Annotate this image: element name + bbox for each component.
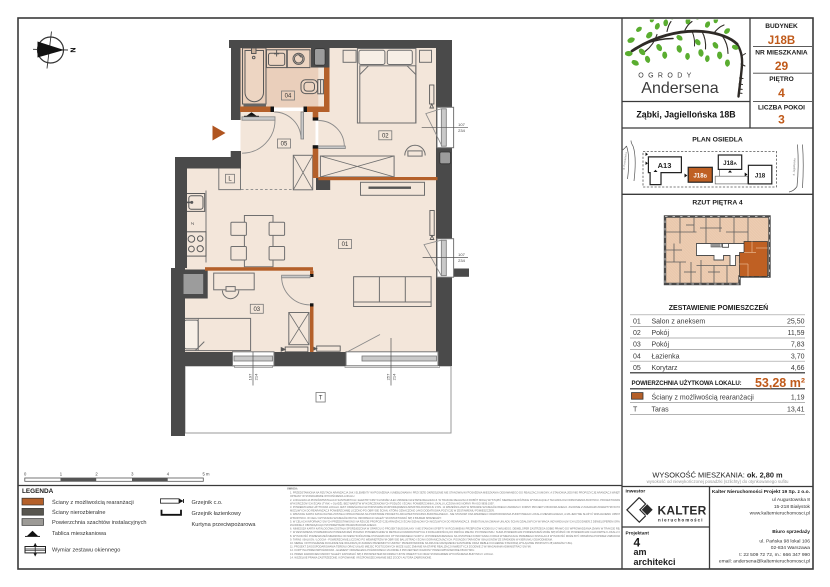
svg-text:architekci: architekci xyxy=(634,557,676,567)
svg-text:ZGODNIE Z OBOWIĄZUJĄCYMI PRZEP: ZGODNIE Z OBOWIĄZUJĄCYMI PRZEPISAMI PRAW… xyxy=(290,523,377,527)
svg-text:Ściany z możliwością rearanżac: Ściany z możliwością rearanżacji xyxy=(52,498,134,506)
svg-text:4: 4 xyxy=(778,86,785,100)
svg-text:Pokój: Pokój xyxy=(652,342,670,349)
svg-text:UWAGA:: UWAGA: xyxy=(287,487,298,491)
svg-text:www.kalternieruchomosci.pl: www.kalternieruchomosci.pl xyxy=(750,511,810,517)
svg-text:02: 02 xyxy=(382,134,389,140)
svg-text:53,28 m²: 53,28 m² xyxy=(755,376,805,390)
svg-text:N: N xyxy=(69,47,76,52)
svg-text:Andersena: Andersena xyxy=(641,80,718,97)
svg-text:Salon z aneksem: Salon z aneksem xyxy=(652,319,706,326)
svg-text:Taras: Taras xyxy=(652,406,670,413)
svg-text:Ząbki, Jagiellońska 18B: Ząbki, Jagiellońska 18B xyxy=(636,110,735,120)
svg-text:ZESTAWIENIE POMIESZCZEŃ: ZESTAWIENIE POMIESZCZEŃ xyxy=(669,303,768,312)
svg-text:Ściany z możliwością rearanżac: Ściany z możliwością rearanżacji xyxy=(652,392,755,401)
svg-text:t: 22 509 72 72, m.: 666 347 9: t: 22 509 72 72, m.: 666 347 990 xyxy=(739,552,810,558)
svg-text:J18A: J18A xyxy=(723,160,737,167)
svg-text:J18B: J18B xyxy=(693,173,707,180)
svg-text:01: 01 xyxy=(342,242,349,248)
svg-text:email: andersena@kalternieruch: email: andersena@kalternieruchomosci.pl xyxy=(719,559,810,565)
svg-text:ul. Jagiellońska: ul. Jagiellońska xyxy=(792,158,797,176)
svg-text:Ściany nierozbieralne: Ściany nierozbieralne xyxy=(52,508,105,516)
svg-text:214: 214 xyxy=(253,373,258,380)
svg-text:0: 0 xyxy=(24,472,27,477)
svg-text:234: 234 xyxy=(458,258,465,263)
svg-text:OGRODY: OGRODY xyxy=(638,73,696,80)
svg-text:Biuro sprzedaży: Biuro sprzedaży xyxy=(772,529,810,535)
svg-text:PIĘTRO: PIĘTRO xyxy=(769,76,794,83)
svg-text:3: 3 xyxy=(131,472,134,477)
svg-text:T: T xyxy=(633,406,638,413)
svg-text:T: T xyxy=(319,396,323,402)
svg-text:J18: J18 xyxy=(755,172,766,179)
svg-text:Powierzchnia szachtów instalac: Powierzchnia szachtów instalacyjnych xyxy=(52,520,147,526)
svg-text:05: 05 xyxy=(281,142,288,148)
svg-text:11,59: 11,59 xyxy=(788,330,805,337)
svg-text:02: 02 xyxy=(633,330,641,337)
svg-text:234: 234 xyxy=(458,128,465,133)
svg-text:29: 29 xyxy=(775,59,789,73)
svg-text:Wymiar zestawu okiennego: Wymiar zestawu okiennego xyxy=(52,547,120,553)
svg-text:OPISANY W STANDARDZIE WYKOŃCZE: OPISANY W STANDARDZIE WYKOŃCZENIA LOKALU… xyxy=(290,494,355,498)
svg-text:4: 4 xyxy=(167,472,170,477)
svg-text:214: 214 xyxy=(391,373,396,380)
svg-text:13,41: 13,41 xyxy=(787,406,805,413)
svg-text:A13: A13 xyxy=(658,161,672,170)
svg-text:15-218 Białystok: 15-218 Białystok xyxy=(774,504,811,510)
svg-text:04: 04 xyxy=(633,353,641,360)
svg-text:197: 197 xyxy=(248,373,253,380)
svg-text:03: 03 xyxy=(253,307,260,313)
svg-text:PLAN OSIEDLA: PLAN OSIEDLA xyxy=(692,137,743,144)
svg-text:7,83: 7,83 xyxy=(791,342,805,349)
svg-text:KALTER: KALTER xyxy=(658,503,707,517)
svg-text:3,70: 3,70 xyxy=(791,353,805,360)
svg-text:Łazienka: Łazienka xyxy=(652,353,680,360)
svg-text:J18B: J18B xyxy=(768,35,796,47)
svg-text:RZUT PIĘTRA 4: RZUT PIĘTRA 4 xyxy=(692,200,743,207)
svg-text:Inwestor: Inwestor xyxy=(626,489,646,495)
svg-text:WYSOKOŚĆ MIESZKANIA: ok. 2,80: WYSOKOŚĆ MIESZKANIA: ok. 2,80 m xyxy=(652,471,783,480)
svg-text:LEGENDA: LEGENDA xyxy=(22,488,54,495)
svg-text:am: am xyxy=(634,547,647,557)
svg-text:107: 107 xyxy=(458,252,465,257)
svg-text:2: 2 xyxy=(95,472,98,477)
svg-text:LICZBA POKOI: LICZBA POKOI xyxy=(758,104,805,111)
svg-text:Korytarz: Korytarz xyxy=(652,365,679,372)
svg-text:Tablica mieszkaniowa: Tablica mieszkaniowa xyxy=(52,531,107,537)
svg-text:Kalter Nieruchomości Projekt 1: Kalter Nieruchomości Projekt 19 Sp. z o.… xyxy=(712,489,811,495)
svg-text:Kurtyna przeciwpożarowa: Kurtyna przeciwpożarowa xyxy=(192,522,257,528)
svg-text:1: 1 xyxy=(60,472,63,477)
svg-text:nieruchomości: nieruchomości xyxy=(658,517,704,522)
svg-text:BUDYNEK: BUDYNEK xyxy=(765,23,798,30)
svg-text:ul. Pańska 98 lokal 106: ul. Pańska 98 lokal 106 xyxy=(759,538,810,544)
svg-text:01: 01 xyxy=(633,319,641,326)
svg-text:02-834 Warszawa: 02-834 Warszawa xyxy=(771,545,811,551)
svg-text:4,66: 4,66 xyxy=(791,365,805,372)
svg-text:POWIERZCHNIA UŻYTKOWA LOKALU:: POWIERZCHNIA UŻYTKOWA LOKALU: xyxy=(632,380,742,387)
svg-text:04: 04 xyxy=(285,94,292,100)
svg-text:Grzejnik łazienkowy: Grzejnik łazienkowy xyxy=(192,511,242,517)
svg-text:3: 3 xyxy=(778,112,785,126)
svg-text:25,50: 25,50 xyxy=(787,319,805,326)
svg-text:03: 03 xyxy=(633,342,641,349)
svg-text:ul Augustowska 8: ul Augustowska 8 xyxy=(772,497,810,503)
svg-text:NR MIESZKANIA: NR MIESZKANIA xyxy=(755,50,808,57)
svg-text:Grzejnik c.o.: Grzejnik c.o. xyxy=(192,500,224,506)
svg-text:Pokój: Pokój xyxy=(652,330,670,337)
svg-text:wysokość od niewykończonej pos: wysokość od niewykończonej posadzki (szl… xyxy=(647,479,789,484)
svg-text:Z: Z xyxy=(190,222,195,225)
svg-text:1,19: 1,19 xyxy=(791,394,805,401)
svg-text:05: 05 xyxy=(633,365,641,372)
svg-text:5 m: 5 m xyxy=(203,472,210,477)
svg-text:107: 107 xyxy=(458,122,465,127)
svg-text:257: 257 xyxy=(386,373,391,380)
